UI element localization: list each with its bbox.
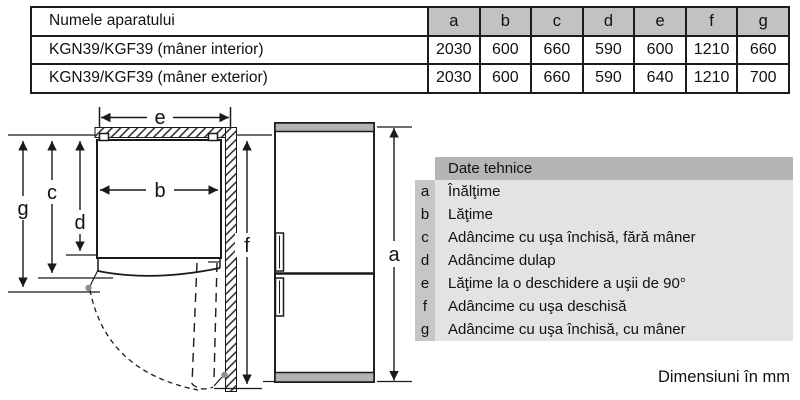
table-header-dim-a: a <box>428 7 480 36</box>
dimension-label-d: d <box>74 212 85 234</box>
legend: Date tehnice a Înălţime b Lăţime c Adânc… <box>415 157 793 341</box>
table-header-dim-g: g <box>737 7 789 36</box>
legend-row-f: f Adâncime cu uşa deschisă <box>415 295 793 318</box>
legend-label: Adâncime dulap <box>435 249 793 272</box>
dimension-value-cell: 660 <box>531 36 583 65</box>
dimension-value-cell: 700 <box>737 64 789 93</box>
legend-key: g <box>415 318 435 341</box>
legend-label: Adâncime cu uşa închisă, fără mâner <box>435 226 793 249</box>
model-name-cell: KGN39/KGF39 (mâner exterior) <box>31 64 428 93</box>
dimension-label-g: g <box>17 198 28 220</box>
dimension-value-cell: 640 <box>634 64 686 93</box>
open-door-outline <box>192 263 197 384</box>
dimension-value-cell: 600 <box>634 36 686 65</box>
legend-label: Lăţime <box>435 203 793 226</box>
top-view-diagram: e b <box>8 106 272 392</box>
fridge-top-cap <box>275 123 374 132</box>
model-name-cell: KGN39/KGF39 (mâner interior) <box>31 36 428 65</box>
dimension-label-a: a <box>388 244 400 266</box>
legend-key: e <box>415 272 435 295</box>
legend-key: b <box>415 203 435 226</box>
table-header-name: Numele aparatului <box>31 7 428 36</box>
dimension-value-cell: 660 <box>737 36 789 65</box>
leader-line <box>214 377 222 386</box>
legend-key: a <box>415 180 435 203</box>
legend-label: Adâncime cu uşa deschisă <box>435 295 793 318</box>
hinge-right <box>209 134 218 141</box>
hinge-left <box>100 134 109 141</box>
dimensions-table: Numele aparatului a b c d e f g KGN39/KG… <box>30 6 790 94</box>
legend-row-b: b Lăţime <box>415 203 793 226</box>
dimension-value-cell: 600 <box>480 36 532 65</box>
table-header-dim-c: c <box>531 7 583 36</box>
legend-row-a: a Înălţime <box>415 180 793 203</box>
fridge-plinth <box>275 373 374 383</box>
fridge-front-view-body <box>275 123 374 382</box>
table-header-row: Numele aparatului a b c d e f g <box>31 7 789 36</box>
dimension-value-cell: 660 <box>531 64 583 93</box>
wall-hatch-vertical <box>226 128 237 392</box>
legend-key: c <box>415 226 435 249</box>
legend-key: d <box>415 249 435 272</box>
dimension-value-cell: 2030 <box>428 64 480 93</box>
legend-row-e: e Lăţime la o deschidere a uşii de 90° <box>415 272 793 295</box>
open-door-outline <box>214 263 217 380</box>
dimension-value-cell: 600 <box>480 64 532 93</box>
dimension-label-f: f <box>244 235 250 257</box>
dimension-label-b: b <box>154 180 165 202</box>
units-note: Dimensiuni în mm <box>540 368 790 387</box>
table-header-dim-f: f <box>686 7 738 36</box>
page: Numele aparatului a b c d e f g KGN39/KG… <box>0 0 800 400</box>
dimension-label-c: c <box>47 182 57 204</box>
table-header-dim-e: e <box>634 7 686 36</box>
dimension-value-cell: 1210 <box>686 36 738 65</box>
fridge-dimension-diagram: e b <box>0 100 420 400</box>
door-front <box>98 268 220 276</box>
legend-row-d: d Adâncime dulap <box>415 249 793 272</box>
handle-dot <box>221 372 227 378</box>
handle-dot <box>85 285 91 291</box>
front-view-diagram: a <box>263 123 412 382</box>
legend-row-g: g Adâncime cu uşa închisă, cu mâner <box>415 318 793 341</box>
legend-label: Adâncime cu uşa închisă, cu mâner <box>435 318 793 341</box>
dimension-value-cell: 590 <box>583 64 635 93</box>
legend-title: Date tehnice <box>435 157 793 180</box>
table-row: KGN39/KGF39 (mâner exterior) 2030 600 66… <box>31 64 789 93</box>
legend-label: Lăţime la o deschidere a uşii de 90° <box>435 272 793 295</box>
table-header-dim-d: d <box>583 7 635 36</box>
table-header-dim-b: b <box>480 7 532 36</box>
table-row: KGN39/KGF39 (mâner interior) 2030 600 66… <box>31 36 789 65</box>
legend-label: Înălţime <box>435 180 793 203</box>
dimension-value-cell: 1210 <box>686 64 738 93</box>
dimension-value-cell: 590 <box>583 36 635 65</box>
dimension-label-e: e <box>154 107 165 129</box>
legend-key: f <box>415 295 435 318</box>
dimension-value-cell: 2030 <box>428 36 480 65</box>
open-door-bottom <box>192 384 213 389</box>
legend-row-c: c Adâncime cu uşa închisă, fără mâner <box>415 226 793 249</box>
door-swing-arc <box>90 290 198 390</box>
